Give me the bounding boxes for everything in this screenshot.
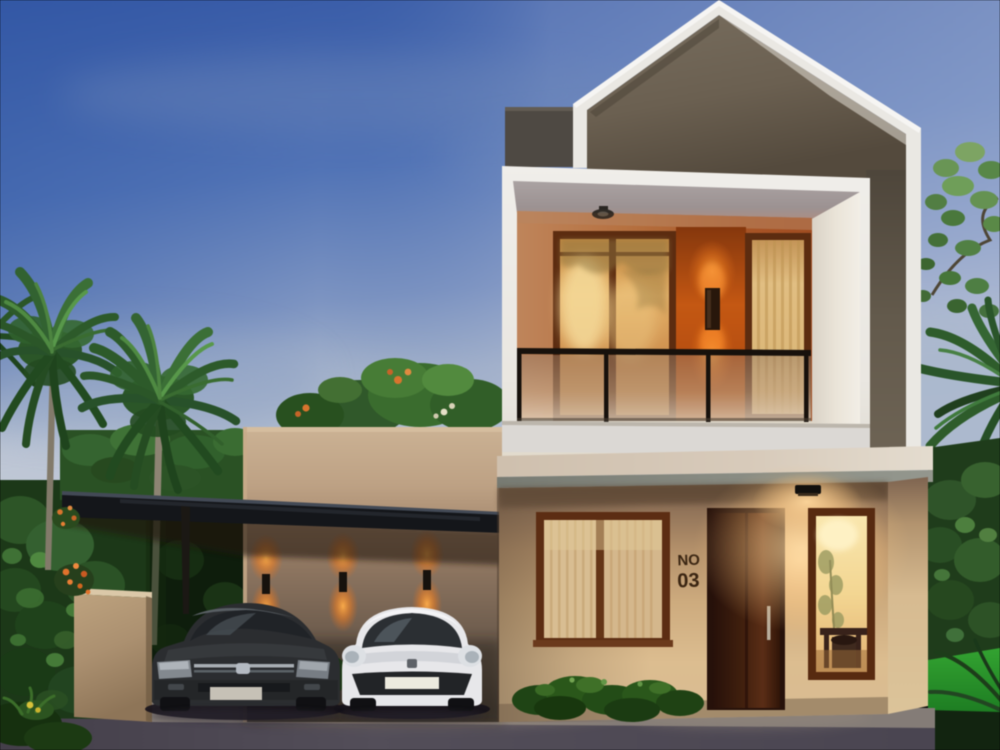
svg-text:03: 03	[677, 570, 700, 593]
